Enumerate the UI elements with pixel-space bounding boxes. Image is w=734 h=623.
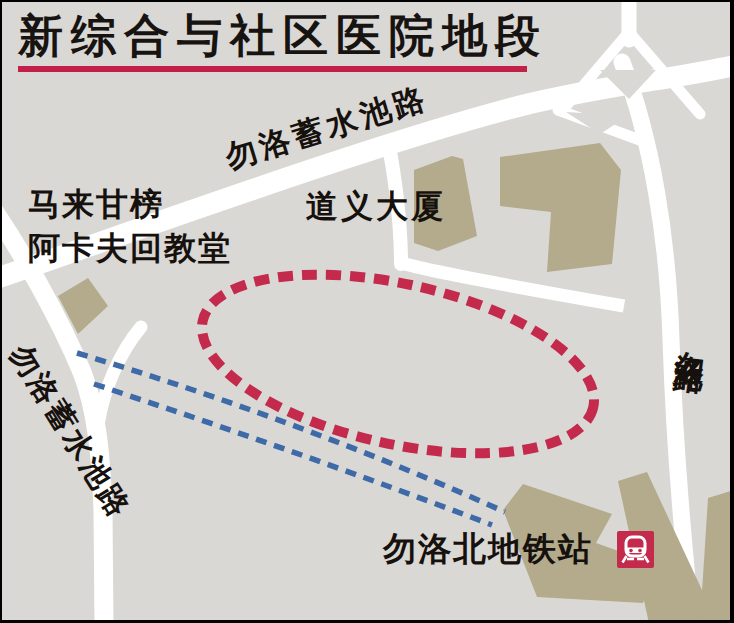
mosque-label: 马来甘榜 阿卡夫回教堂 (28, 182, 232, 270)
title-underline (18, 66, 527, 72)
page-title: 新综合与社区医院地段 (18, 6, 548, 66)
train-face-band (627, 548, 645, 554)
tower-label: 道义大厦 (306, 185, 446, 229)
mosque-label-line1: 马来甘榜 (28, 182, 232, 226)
train-icon (617, 531, 654, 568)
train-light-right (638, 549, 642, 553)
mrt-station-label: 勿洛北地铁站 (383, 527, 593, 572)
map-infographic: 新综合与社区医院地段 勿洛蓄水池路 马来甘榜 阿卡夫回教堂 道义大厦 勿洛蓄水池… (0, 0, 734, 623)
train-light-left (629, 549, 633, 553)
mosque-label-line2: 阿卡夫回教堂 (28, 226, 232, 270)
